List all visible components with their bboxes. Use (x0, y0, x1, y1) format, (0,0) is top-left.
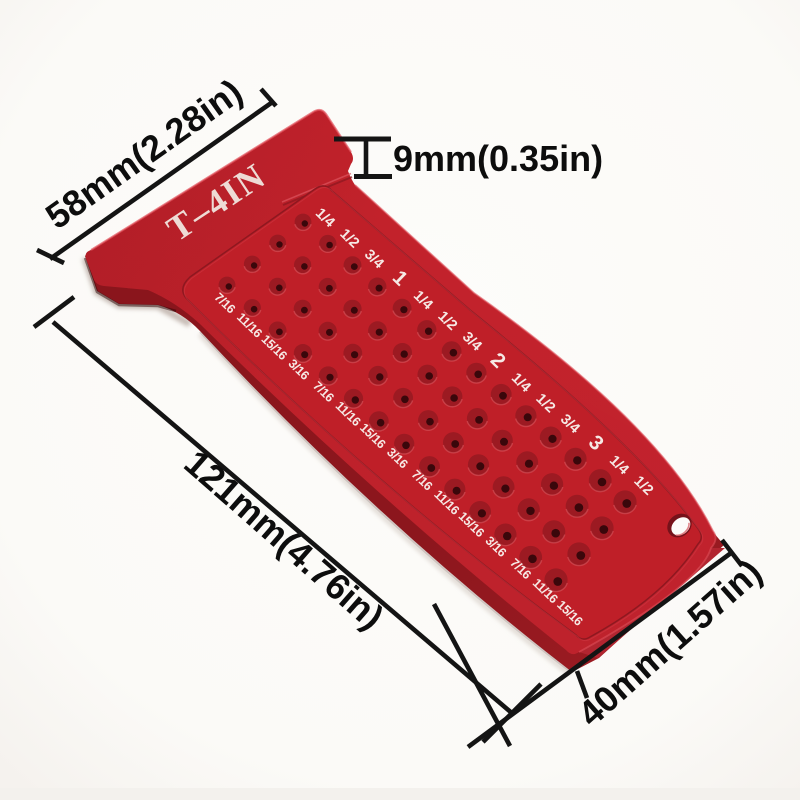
svg-text:9mm(0.35in): 9mm(0.35in) (393, 138, 603, 179)
